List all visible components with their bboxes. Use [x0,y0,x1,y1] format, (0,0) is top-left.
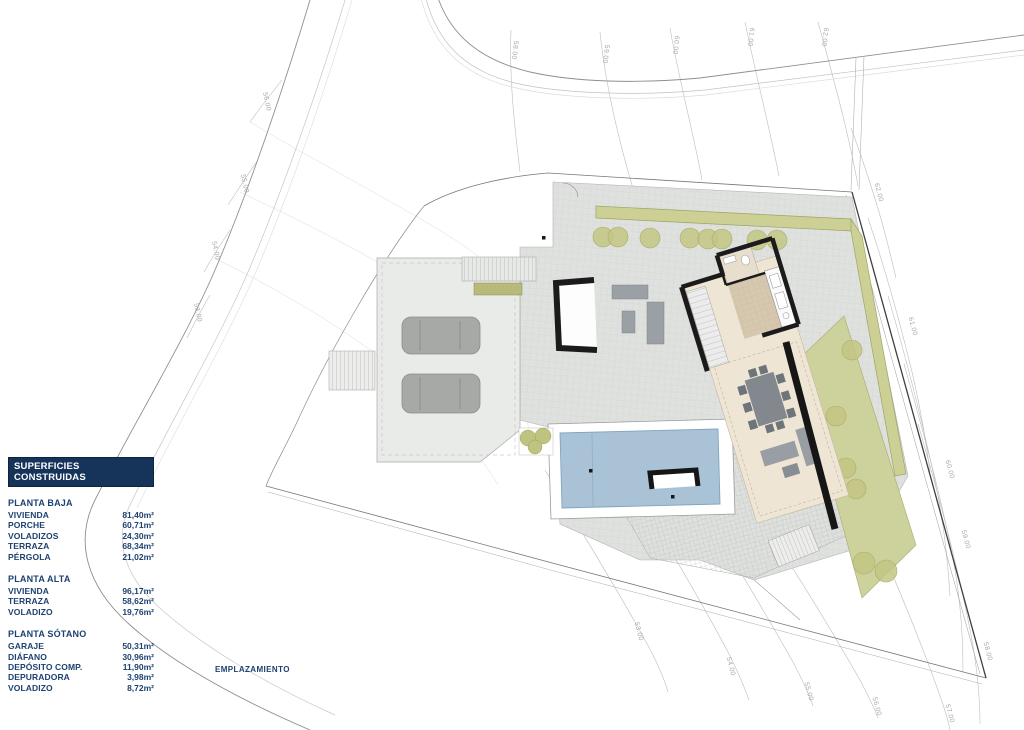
surface-row: TERRAZA58,62m² [8,596,154,606]
surfaces-section: PLANTA SÓTANOGARAJE50,31m²DIÁFANO30,96m²… [8,629,154,693]
surfaces-section: PLANTA BAJAVIVIENDA81,40m²PORCHE60,71m²V… [8,498,154,562]
site-plan-page: 58.0059.0060.0061.0062.0056.0055.0054.00… [0,0,1024,730]
surface-row: DEPÓSITO COMP.11,90m² [8,662,154,672]
surface-value: 11,90m² [123,662,154,672]
tree-icon [842,340,862,360]
surface-row: VOLADIZO19,76m² [8,607,154,617]
contour-label: 62.00 [820,27,829,47]
surface-row: DEPURADORA3,98m² [8,672,154,682]
surface-value: 58,62m² [122,596,154,606]
contour-label: 58.00 [982,642,994,662]
surface-label: PORCHE [8,520,45,530]
surface-label: PÉRGOLA [8,552,51,562]
tree-icon [608,227,628,247]
contour-label: 54.00 [725,657,737,677]
car [402,317,480,354]
surface-row: VOLADIZO8,72m² [8,683,154,693]
contour-label: 54.00 [210,241,221,261]
contour-label: 57.00 [944,704,956,724]
contour-label: 62.00 [873,183,885,203]
surface-value: 3,98m² [127,672,154,682]
contour-label: 53.00 [192,303,203,323]
tree-icon [846,479,866,499]
surface-row: PÉRGOLA21,02m² [8,552,154,562]
surfaces-section-heading: PLANTA SÓTANO [8,629,154,640]
contour-label: 61.00 [746,27,755,47]
surface-label: VOLADIZOS [8,531,59,541]
road-top-edge [437,0,1024,81]
contour-label: 59.00 [601,44,610,64]
surface-label: VIVIENDA [8,510,49,520]
surfaces-table: SUPERFICIES CONSTRUIDAS PLANTA BAJAVIVIE… [8,457,154,705]
contour-label: 55.00 [239,174,250,194]
tree-icon [640,228,660,248]
pool-bushes [519,428,553,455]
surface-label: VIVIENDA [8,586,49,596]
surfaces-section: PLANTA ALTAVIVIENDA96,17m²TERRAZA58,62m²… [8,574,154,617]
surface-label: DIÁFANO [8,652,47,662]
contour-label: 56.00 [871,697,883,717]
contour-label: 60.00 [944,460,956,480]
planter-wall [556,280,597,350]
tree-icon [826,406,846,426]
contour-label: 55.00 [803,682,815,702]
surface-row: TERRAZA68,34m² [8,541,154,551]
contour-label: 58.00 [510,40,519,60]
surface-value: 30,96m² [122,652,154,662]
plan-caption: EMPLAZAMIENTO [215,665,290,674]
tree-icon [680,228,700,248]
surface-value: 8,72m² [127,683,154,693]
bench-wall [650,470,698,489]
surface-row: DIÁFANO30,96m² [8,652,154,662]
surface-value: 68,34m² [122,541,154,551]
surface-row: VIVIENDA81,40m² [8,510,154,520]
stairs-driveway-west [329,351,375,390]
road-left-inner [122,0,345,715]
surfaces-section-heading: PLANTA ALTA [8,574,154,585]
surface-value: 96,17m² [122,586,154,596]
surfaces-table-body: PLANTA BAJAVIVIENDA81,40m²PORCHE60,71m²V… [8,498,154,693]
surface-value: 19,76m² [122,607,154,617]
surface-row: VOLADIZOS24,30m² [8,531,154,541]
contour-label: 59.00 [960,530,972,550]
pool [519,419,735,519]
surface-value: 21,02m² [122,552,154,562]
surface-label: TERRAZA [8,541,49,551]
surface-value: 50,31m² [122,641,154,651]
contour-label: 53.00 [633,622,645,642]
surface-label: DEPURADORA [8,672,70,682]
surface-value: 24,30m² [122,531,154,541]
surfaces-section-heading: PLANTA BAJA [8,498,154,509]
car [402,374,480,413]
tree-icon [875,560,897,582]
surface-label: TERRAZA [8,596,49,606]
surface-row: VIVIENDA96,17m² [8,586,154,596]
surfaces-table-title: SUPERFICIES CONSTRUIDAS [8,457,154,487]
tree-icon [853,552,875,574]
tree-icon [712,229,732,249]
surface-row: GARAJE50,31m² [8,641,154,651]
surface-label: DEPÓSITO COMP. [8,662,82,672]
contour-label: 61.00 [907,317,919,337]
surface-value: 60,71m² [122,520,154,530]
surface-label: VOLADIZO [8,607,53,617]
entry-planter [474,283,522,295]
surface-label: VOLADIZO [8,683,53,693]
contour-label: 60.00 [671,35,680,55]
surface-value: 81,40m² [122,510,154,520]
surface-label: GARAJE [8,641,44,651]
surface-row: PORCHE60,71m² [8,520,154,530]
